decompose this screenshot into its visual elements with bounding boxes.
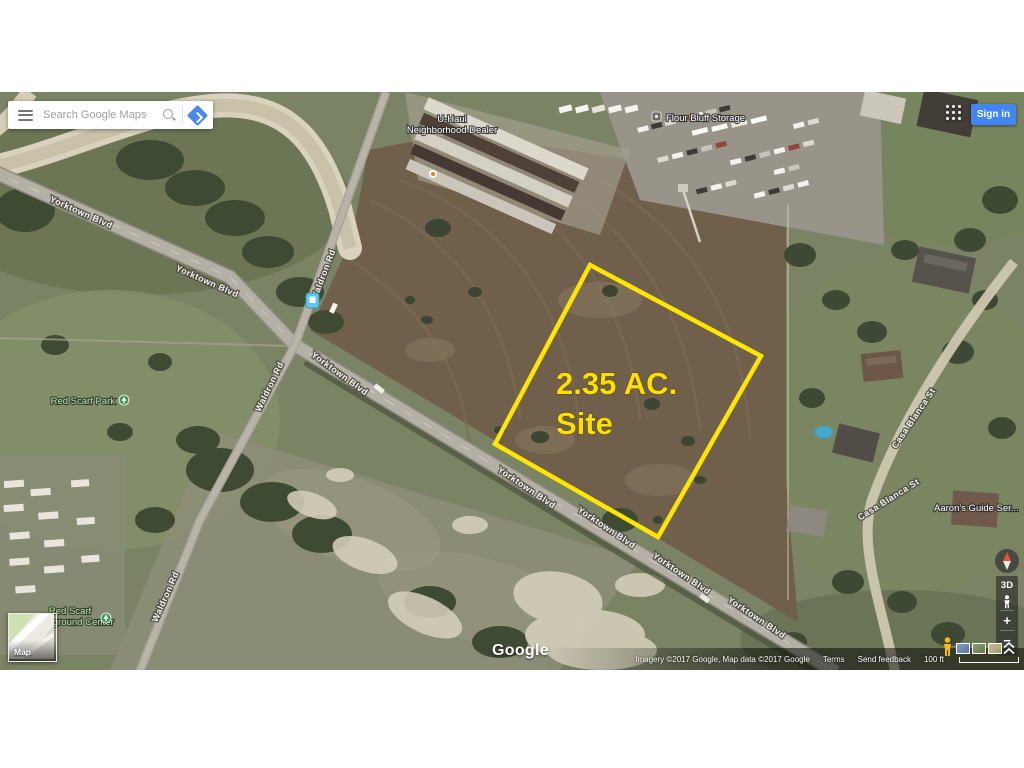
search-icon[interactable] [162, 108, 176, 122]
search-bar [8, 101, 213, 129]
menu-icon[interactable] [18, 110, 33, 121]
park-label[interactable]: Red Scarf Park [51, 396, 116, 407]
poi-guide-service[interactable]: Aaron's Guide Ser... [934, 503, 1019, 514]
imagery-thumbnail[interactable] [988, 643, 1002, 654]
imagery-thumbnail[interactable] [956, 643, 970, 654]
storage-icon [655, 115, 658, 118]
google-maps-screenshot: Yorktown Blvd Yorktown Blvd Yorktown Blv… [0, 0, 1024, 768]
map-toggle-label: Map [14, 647, 31, 657]
uhaul-label-line1[interactable]: U-Haul [437, 114, 467, 125]
site-label-text: Site [556, 406, 613, 441]
divider [182, 106, 183, 124]
map-viewport: Yorktown Blvd Yorktown Blvd Yorktown Blv… [0, 92, 1024, 670]
map-type-toggle[interactable]: Map [8, 613, 57, 662]
google-logo: Google [492, 642, 549, 660]
compass-control[interactable] [995, 549, 1019, 573]
guide-service-label[interactable]: Aaron's Guide Ser... [934, 503, 1019, 514]
compass-needle-south [1003, 561, 1011, 570]
pegman-drag-handle[interactable] [941, 637, 954, 662]
double-chevron-up-icon [1003, 642, 1015, 655]
zoom-in-button[interactable]: + [1003, 611, 1011, 630]
sign-in-button[interactable]: Sign in [971, 104, 1016, 125]
uhaul-label-line2[interactable]: Neighborhood Dealer [407, 125, 497, 136]
send-feedback-link[interactable]: Send feedback [858, 655, 911, 664]
satellite-imagery[interactable]: Yorktown Blvd Yorktown Blvd Yorktown Blv… [0, 92, 1024, 670]
poi-storage[interactable]: Flour Bluff Storage [652, 112, 745, 124]
uhaul-marker-icon [431, 172, 435, 176]
search-input[interactable] [41, 108, 162, 122]
tree-icon [105, 619, 106, 621]
storage-label[interactable]: Flour Bluff Storage [666, 113, 745, 124]
street-view-pegman-button[interactable] [1002, 594, 1012, 610]
attribution-text: Imagery ©2017 Google, Map data ©2017 Goo… [635, 655, 810, 664]
directions-icon[interactable] [187, 104, 208, 125]
expand-imagery-chevron[interactable] [1003, 642, 1015, 660]
compass-needle-north [1003, 552, 1011, 561]
terms-link[interactable]: Terms [823, 655, 845, 664]
bus-stop-icon [310, 297, 316, 304]
apps-grid-icon[interactable] [946, 105, 962, 121]
site-acreage-text: 2.35 AC. [556, 366, 677, 401]
tree-icon [123, 401, 124, 403]
imagery-thumbnail[interactable] [972, 643, 986, 654]
3d-button[interactable]: 3D [1001, 576, 1013, 594]
attribution-bar: Imagery ©2017 Google, Map data ©2017 Goo… [635, 653, 1019, 666]
yellow-pegman-icon [941, 637, 954, 657]
pegman-icon [1002, 595, 1012, 609]
poi-bus-stop[interactable] [306, 293, 319, 308]
